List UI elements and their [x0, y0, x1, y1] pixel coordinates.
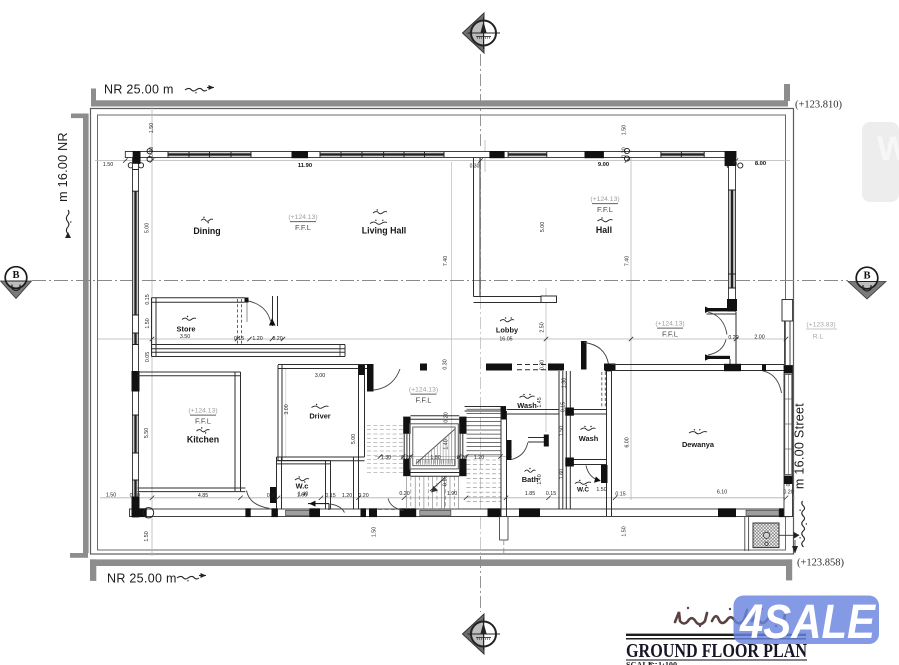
svg-text:1.50: 1.50 [622, 526, 628, 536]
svg-text:Bath: Bath [522, 475, 539, 484]
svg-text:0.15: 0.15 [561, 402, 567, 412]
svg-text:Kitchen: Kitchen [187, 435, 219, 445]
svg-text:1.85: 1.85 [525, 491, 535, 497]
svg-text:Wash: Wash [579, 434, 599, 443]
svg-text:Dining: Dining [193, 226, 220, 236]
svg-text:(+124.13): (+124.13) [409, 387, 438, 394]
svg-text:3.50: 3.50 [180, 334, 190, 340]
svg-text:F.F.L: F.F.L [415, 396, 431, 405]
svg-text:Hall: Hall [596, 225, 612, 235]
svg-text:m 16.00 NR: m 16.00 NR [56, 132, 70, 202]
svg-text:B: B [863, 271, 870, 282]
svg-text:W.c: W.c [296, 482, 309, 491]
svg-text:2.50: 2.50 [540, 322, 546, 332]
svg-text:0.20: 0.20 [728, 335, 738, 341]
svg-text:0.30: 0.30 [786, 476, 792, 486]
svg-text:0.15: 0.15 [145, 294, 151, 304]
svg-text:1.50: 1.50 [103, 162, 113, 168]
svg-text:0.15: 0.15 [325, 493, 335, 499]
svg-text:0.15: 0.15 [234, 336, 244, 342]
svg-text:1.30: 1.30 [562, 378, 568, 388]
svg-text:6.00: 6.00 [625, 437, 631, 447]
svg-text:0.15: 0.15 [443, 476, 449, 486]
svg-text:1.50: 1.50 [596, 487, 606, 493]
svg-text:5.00: 5.00 [145, 223, 151, 233]
svg-text:m 16.00 Street: m 16.00 Street [793, 403, 807, 489]
svg-text:(+124.13): (+124.13) [188, 408, 217, 415]
svg-text:0.05: 0.05 [145, 352, 151, 362]
svg-text:16.05: 16.05 [499, 337, 512, 343]
svg-text:NR 25.00 m: NR 25.00 m [107, 572, 177, 586]
svg-text:F.F.L: F.F.L [295, 223, 311, 232]
svg-text:Store: Store [177, 325, 196, 334]
svg-text:(+124.13): (+124.13) [655, 321, 684, 328]
svg-text:NR 25.00 m: NR 25.00 m [104, 83, 174, 97]
svg-text:(+124.13): (+124.13) [590, 196, 619, 203]
svg-text:(+124.13): (+124.13) [288, 214, 317, 221]
svg-text:1.45: 1.45 [537, 397, 543, 407]
svg-text:Driver: Driver [309, 412, 330, 421]
svg-text:0.20: 0.20 [399, 491, 409, 497]
svg-text:0.30: 0.30 [443, 359, 449, 369]
svg-text:0.30: 0.30 [149, 147, 155, 157]
svg-text:0.20: 0.20 [457, 455, 467, 461]
svg-text:0.20: 0.20 [358, 493, 368, 499]
svg-text:1:100: 1:100 [658, 661, 677, 665]
svg-text:3.00: 3.00 [315, 373, 325, 379]
svg-text:0.30: 0.30 [622, 147, 628, 157]
svg-text:1.30: 1.30 [381, 455, 391, 461]
svg-text:Lobby: Lobby [496, 326, 519, 335]
svg-text:1.50: 1.50 [145, 318, 151, 328]
svg-text:4.85: 4.85 [198, 493, 208, 499]
svg-text:1.50: 1.50 [622, 125, 628, 135]
svg-text:F.F.L: F.F.L [195, 417, 211, 426]
svg-text:1.90: 1.90 [447, 491, 457, 497]
svg-text:Wash: Wash [517, 401, 537, 410]
svg-text:5.00: 5.00 [540, 222, 546, 232]
svg-text:3.00: 3.00 [284, 404, 290, 414]
svg-text:1.60: 1.60 [297, 493, 307, 499]
svg-text:1.20: 1.20 [474, 455, 484, 461]
svg-text:1.20: 1.20 [252, 336, 262, 342]
svg-text:1.60: 1.60 [559, 469, 565, 479]
svg-text:(+123.83): (+123.83) [806, 322, 835, 329]
svg-text:1.50: 1.50 [149, 123, 155, 133]
svg-text:0.20: 0.20 [267, 493, 277, 499]
svg-text:0.30: 0.30 [470, 163, 480, 169]
svg-text:5.00: 5.00 [351, 434, 357, 444]
svg-text:W: W [877, 130, 899, 168]
svg-text:4SALE: 4SALE [739, 596, 877, 649]
svg-text:0.20: 0.20 [401, 455, 411, 461]
svg-text:0.30: 0.30 [540, 360, 546, 370]
svg-text:1.50: 1.50 [144, 531, 150, 541]
svg-text:Living Hall: Living Hall [362, 226, 406, 236]
svg-text:2.00: 2.00 [754, 335, 764, 341]
svg-text:SCALE: SCALE [626, 661, 654, 665]
svg-text:(+123.858): (+123.858) [797, 558, 845, 569]
svg-text:0.30: 0.30 [727, 162, 737, 168]
svg-text:0.15: 0.15 [615, 492, 625, 498]
svg-text:1.50: 1.50 [106, 493, 116, 499]
svg-text:(+123.810): (+123.810) [795, 100, 843, 111]
svg-text:6.10: 6.10 [717, 490, 727, 496]
svg-text:0.20: 0.20 [130, 493, 140, 499]
svg-text:8.00: 8.00 [755, 161, 766, 167]
svg-text:Dewanya: Dewanya [682, 440, 715, 449]
svg-text:0.20: 0.20 [443, 412, 449, 422]
svg-text:W.C: W.C [577, 487, 589, 494]
svg-text:1.20: 1.20 [342, 493, 352, 499]
svg-text:0.20: 0.20 [272, 336, 282, 342]
svg-text:0.20: 0.20 [783, 490, 793, 496]
svg-text:0.15: 0.15 [546, 491, 556, 497]
svg-text:B: B [12, 270, 19, 281]
svg-text:1.40: 1.40 [443, 439, 449, 449]
svg-text:11.90: 11.90 [298, 163, 312, 169]
svg-text:1.50: 1.50 [559, 426, 565, 436]
svg-text:1.80: 1.80 [430, 455, 440, 461]
svg-text:7.40: 7.40 [443, 256, 449, 266]
svg-text:5.50: 5.50 [144, 428, 150, 438]
svg-text:F.F.L: F.F.L [597, 205, 613, 214]
svg-text:F.F.L: F.F.L [662, 330, 678, 339]
svg-text:9.00: 9.00 [598, 162, 609, 168]
svg-text:R.L: R.L [813, 334, 824, 341]
svg-text:1.50: 1.50 [372, 527, 378, 537]
svg-text:7.40: 7.40 [625, 256, 631, 266]
